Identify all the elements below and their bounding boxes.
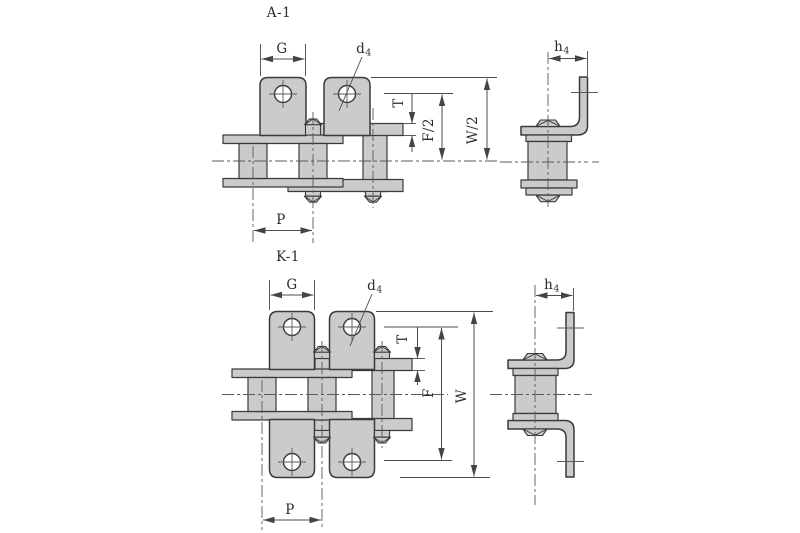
link-plate-edge [521,180,577,188]
a1-title-label: A-1 [266,5,291,21]
dim-label-f2: F/2 [421,118,437,142]
chain-attachment-drawing: A-1 [0,0,800,533]
dim-label-h4: h4 [554,39,570,57]
a1-drawing: A-1 [212,5,599,243]
inner-link-plate [232,369,352,378]
dim-label-d4: d4 [356,41,372,59]
inner-link-plate [223,179,343,188]
link-plate-edge [526,135,572,142]
technical-drawing-canvas: A-1 [0,0,800,533]
dim-label-t: T [391,98,407,108]
k1-drawing: K-1 [222,249,592,530]
dim-label-d4: d4 [367,278,383,296]
roller-end [528,142,567,181]
a1-front-view [212,78,500,244]
link-plate-edge [513,414,558,421]
dim-label-f: F [421,388,437,398]
a1-side-view: h4 [500,39,599,207]
inner-link-plate [223,135,343,144]
link-plate-edge [526,188,572,195]
inner-link-plate [232,412,352,421]
dim-label-g: G [286,277,297,293]
link-plate-edge [513,369,558,376]
dim-label-h4: h4 [544,277,560,295]
dim-label-p: P [276,212,286,228]
k1-front-view [222,312,448,531]
k1-title-label: K-1 [276,249,300,265]
dim-label-w: W [454,389,470,403]
dim-label-g: G [276,41,287,57]
dim-label-w2: W/2 [465,116,481,145]
k1-side-view: h4 [490,277,592,505]
dim-label-p: P [285,502,295,518]
dim-label-t: T [395,334,411,344]
